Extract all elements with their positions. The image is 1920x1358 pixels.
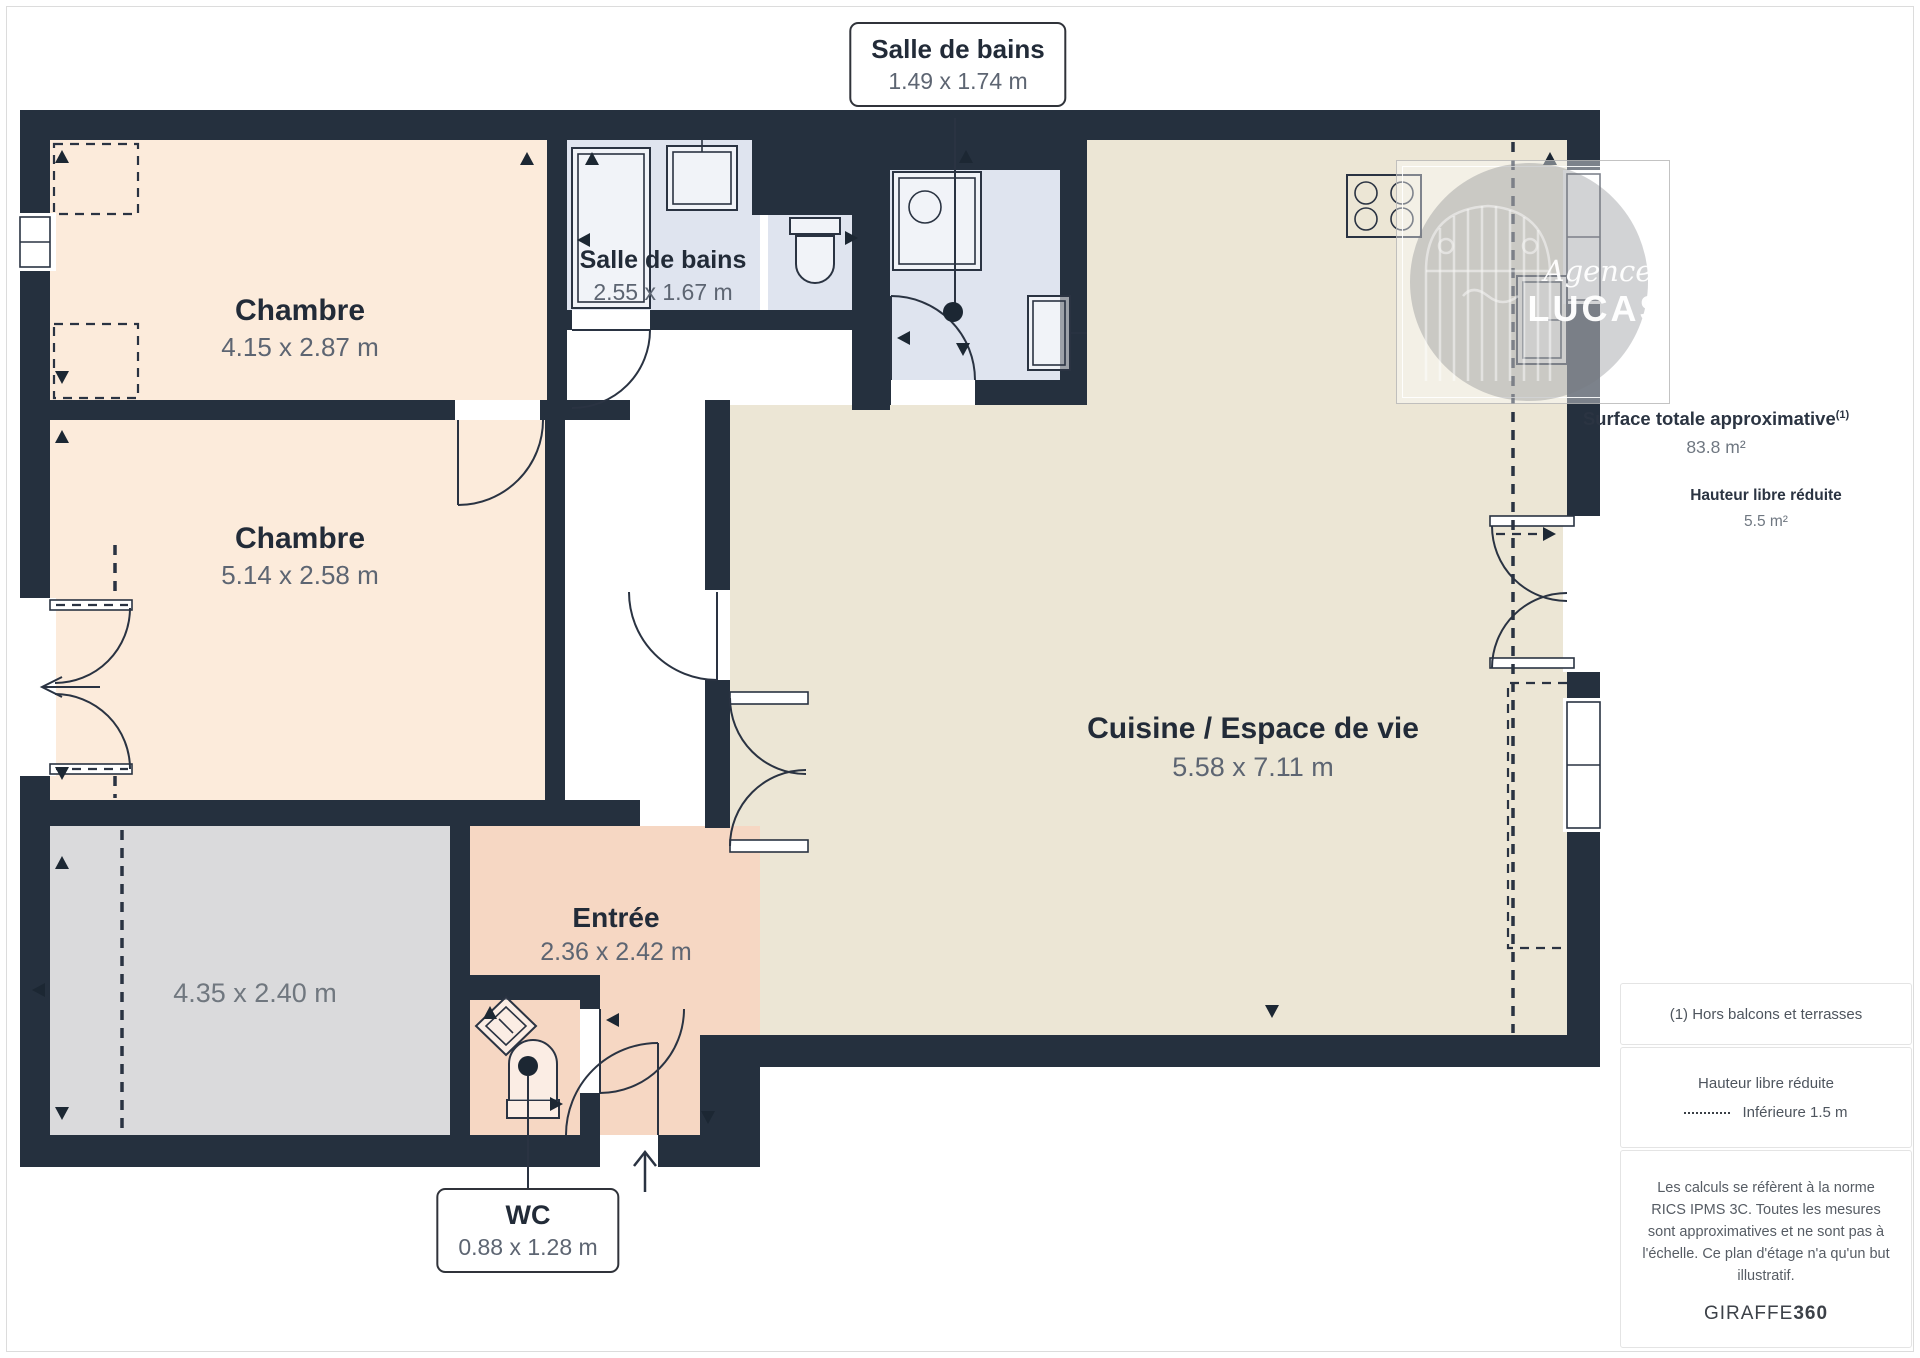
- sink-icon: [667, 140, 737, 210]
- dotted-line-icon: [1684, 1112, 1730, 1114]
- legend-value: Inférieure 1.5 m: [1742, 1104, 1847, 1121]
- surface-total-value: 83.8 m²: [1531, 437, 1901, 458]
- room-label-bedroom1: Chambre 4.15 x 2.87 m: [221, 294, 379, 363]
- callout-title: Salle de bains: [871, 34, 1044, 65]
- brand-name: GIRAFFE: [1704, 1303, 1793, 1324]
- room-dims: 5.58 x 7.11 m: [1087, 752, 1419, 783]
- room-dims: 2.36 x 2.42 m: [540, 938, 691, 967]
- room-label-kitchen: Cuisine / Espace de vie 5.58 x 7.11 m: [1087, 712, 1419, 783]
- room-label-terrace: 4.35 x 2.40 m: [173, 974, 337, 1009]
- room-name: Chambre: [221, 294, 379, 328]
- room-name: Cuisine / Espace de vie: [1087, 712, 1419, 746]
- callout-dot: [518, 1056, 538, 1076]
- room-dims: 5.14 x 2.58 m: [221, 560, 379, 591]
- surface-total-label: Surface totale approximative(1): [1531, 408, 1901, 430]
- reduced-height-value: 5.5 m²: [1621, 513, 1911, 531]
- callout-dot: [943, 302, 963, 322]
- sidebar-legend-box: Hauteur libre réduite Inférieure 1.5 m: [1620, 1047, 1912, 1148]
- callout-wc: WC 0.88 x 1.28 m: [436, 1188, 619, 1273]
- legend-title: Hauteur libre réduite: [1698, 1075, 1834, 1092]
- sidebar-surface-block: Surface totale approximative(1) 83.8 m²: [1531, 408, 1901, 458]
- room-name: Entrée: [540, 902, 691, 934]
- callout-dims: 1.49 x 1.74 m: [871, 68, 1044, 95]
- shower-icon: [893, 172, 981, 270]
- room-name: Salle de bains: [580, 246, 747, 275]
- room-name: Chambre: [221, 522, 379, 556]
- callout-title: WC: [458, 1200, 597, 1231]
- door-arc: [572, 330, 650, 408]
- callout-bathroom2: Salle de bains 1.49 x 1.74 m: [849, 22, 1066, 107]
- sidebar-reduced-height-block: Hauteur libre réduite 5.5 m²: [1621, 487, 1911, 531]
- surface-footnote-marker: (1): [1836, 409, 1849, 421]
- legend-row: Inférieure 1.5 m: [1684, 1104, 1847, 1121]
- watermark-agency-script: Agence: [1544, 254, 1653, 288]
- room-label-bathroom1: Salle de bains 2.55 x 1.67 m: [580, 246, 747, 306]
- room-dims: 4.35 x 2.40 m: [173, 978, 337, 1009]
- room-label-entry: Entrée 2.36 x 2.42 m: [540, 902, 691, 967]
- brand-suffix: 360: [1793, 1303, 1828, 1324]
- door-arc: [629, 592, 717, 680]
- toilet-icon: [790, 218, 840, 283]
- room-label-bedroom2: Chambre 5.14 x 2.58 m: [221, 522, 379, 591]
- sidebar-legal-box: Les calculs se réfèrent à la norme RICS …: [1620, 1150, 1912, 1348]
- footnote-text: (1) Hors balcons et terrasses: [1670, 1006, 1863, 1023]
- legal-text: Les calculs se réfèrent à la norme RICS …: [1641, 1177, 1891, 1287]
- sidebar-footnote-box: (1) Hors balcons et terrasses: [1620, 983, 1912, 1045]
- reduced-height-label: Hauteur libre réduite: [1621, 487, 1911, 505]
- floorplan-page: Agence LUCAS Chambre 4.15 x 2.87 m Salle…: [0, 0, 1920, 1358]
- room-dims: 4.15 x 2.87 m: [221, 332, 379, 363]
- surface-total-text: Surface totale approximative: [1583, 408, 1836, 429]
- callout-dims: 0.88 x 1.28 m: [458, 1234, 597, 1261]
- room-dims: 2.55 x 1.67 m: [580, 279, 747, 306]
- brand-logo: GIRAFFE360: [1621, 1303, 1911, 1325]
- watermark-agency-name: LUCAS: [1528, 288, 1667, 330]
